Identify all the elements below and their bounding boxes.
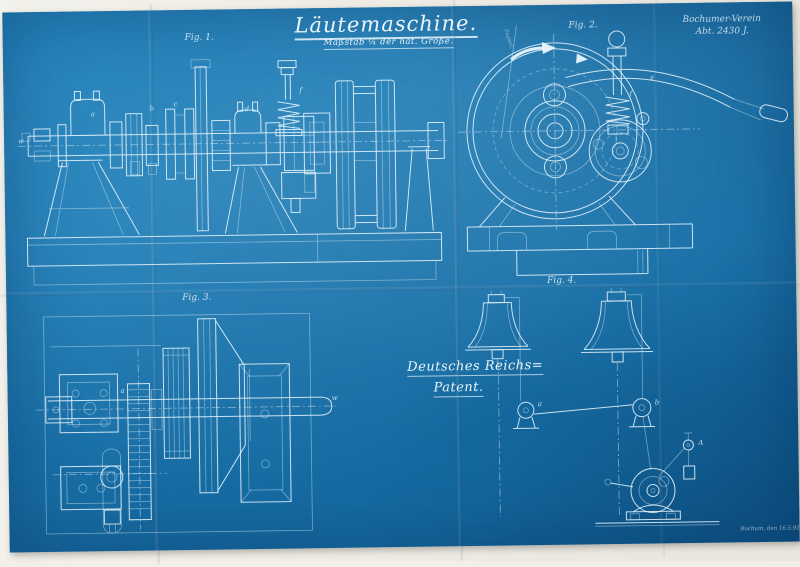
part-label: a	[121, 387, 125, 395]
fig1-drum	[335, 80, 396, 229]
fig2-lever-arm	[565, 67, 789, 126]
part-label: c	[174, 100, 178, 108]
fig2-label: Fig. 2.	[568, 20, 597, 30]
part-label: b	[655, 398, 660, 406]
part-label: w	[332, 394, 338, 402]
fig4-ropes	[504, 295, 642, 402]
fig1-bearing-cap	[70, 99, 104, 135]
fig4-counterweight	[658, 433, 695, 479]
part-label: b	[150, 104, 155, 112]
fig3-label: Fig. 3.	[182, 293, 211, 303]
scale-note: Maßstab ¼ der nat. Größe.	[324, 36, 454, 48]
fig1-spring-tower	[275, 60, 302, 135]
fig1-right-support	[404, 147, 433, 231]
part-label: A	[698, 439, 703, 447]
part-label: w	[18, 137, 24, 145]
part-label: d	[245, 105, 250, 113]
part-label: s	[650, 73, 654, 81]
fig4-ringing-machine	[595, 468, 720, 527]
part-label: a	[538, 400, 542, 408]
date-note: Bochum, den 16.5.91.	[741, 525, 800, 532]
part-label: f	[299, 86, 302, 94]
patent-line1: Deutsches Reichs=	[407, 358, 543, 375]
company-name: Bochumer-Verein	[682, 14, 761, 25]
fig4-left-bell	[464, 290, 531, 364]
blueprint-sheet: Läutemaschine. Maßstab ¼ der nat. Größe.…	[2, 2, 799, 553]
fig4-bell-arrangement	[464, 287, 719, 528]
photo-backdrop: Läutemaschine. Maßstab ¼ der nat. Größe.…	[0, 0, 800, 561]
fig1-side-elevation	[17, 56, 450, 285]
fig2-spring-rod	[605, 31, 631, 144]
fig2-front-elevation	[457, 22, 792, 277]
fig4-guide-pulleys	[513, 398, 655, 428]
fig1-label: Fig. 1.	[185, 33, 214, 43]
fig1-base	[27, 232, 441, 266]
fig3-drum-block	[239, 364, 291, 503]
fig3-pulley	[163, 348, 191, 458]
fig3-disc	[198, 319, 218, 493]
part-label: f	[629, 90, 632, 98]
sheet-title: Läutemaschine.	[294, 11, 477, 38]
patent-line2: Patent.	[433, 380, 483, 396]
fig2-pedestal	[467, 195, 693, 276]
fig4-label: Fig. 4.	[547, 276, 576, 286]
company-dept: Abt. 2430 J.	[696, 26, 749, 37]
sheet-content: Läutemaschine. Maßstab ¼ der nat. Größe.…	[0, 0, 800, 567]
part-label: a	[91, 110, 95, 118]
fig2-handle	[758, 104, 788, 123]
fig3-plan-view	[35, 313, 338, 534]
technical-drawing	[0, 0, 800, 567]
